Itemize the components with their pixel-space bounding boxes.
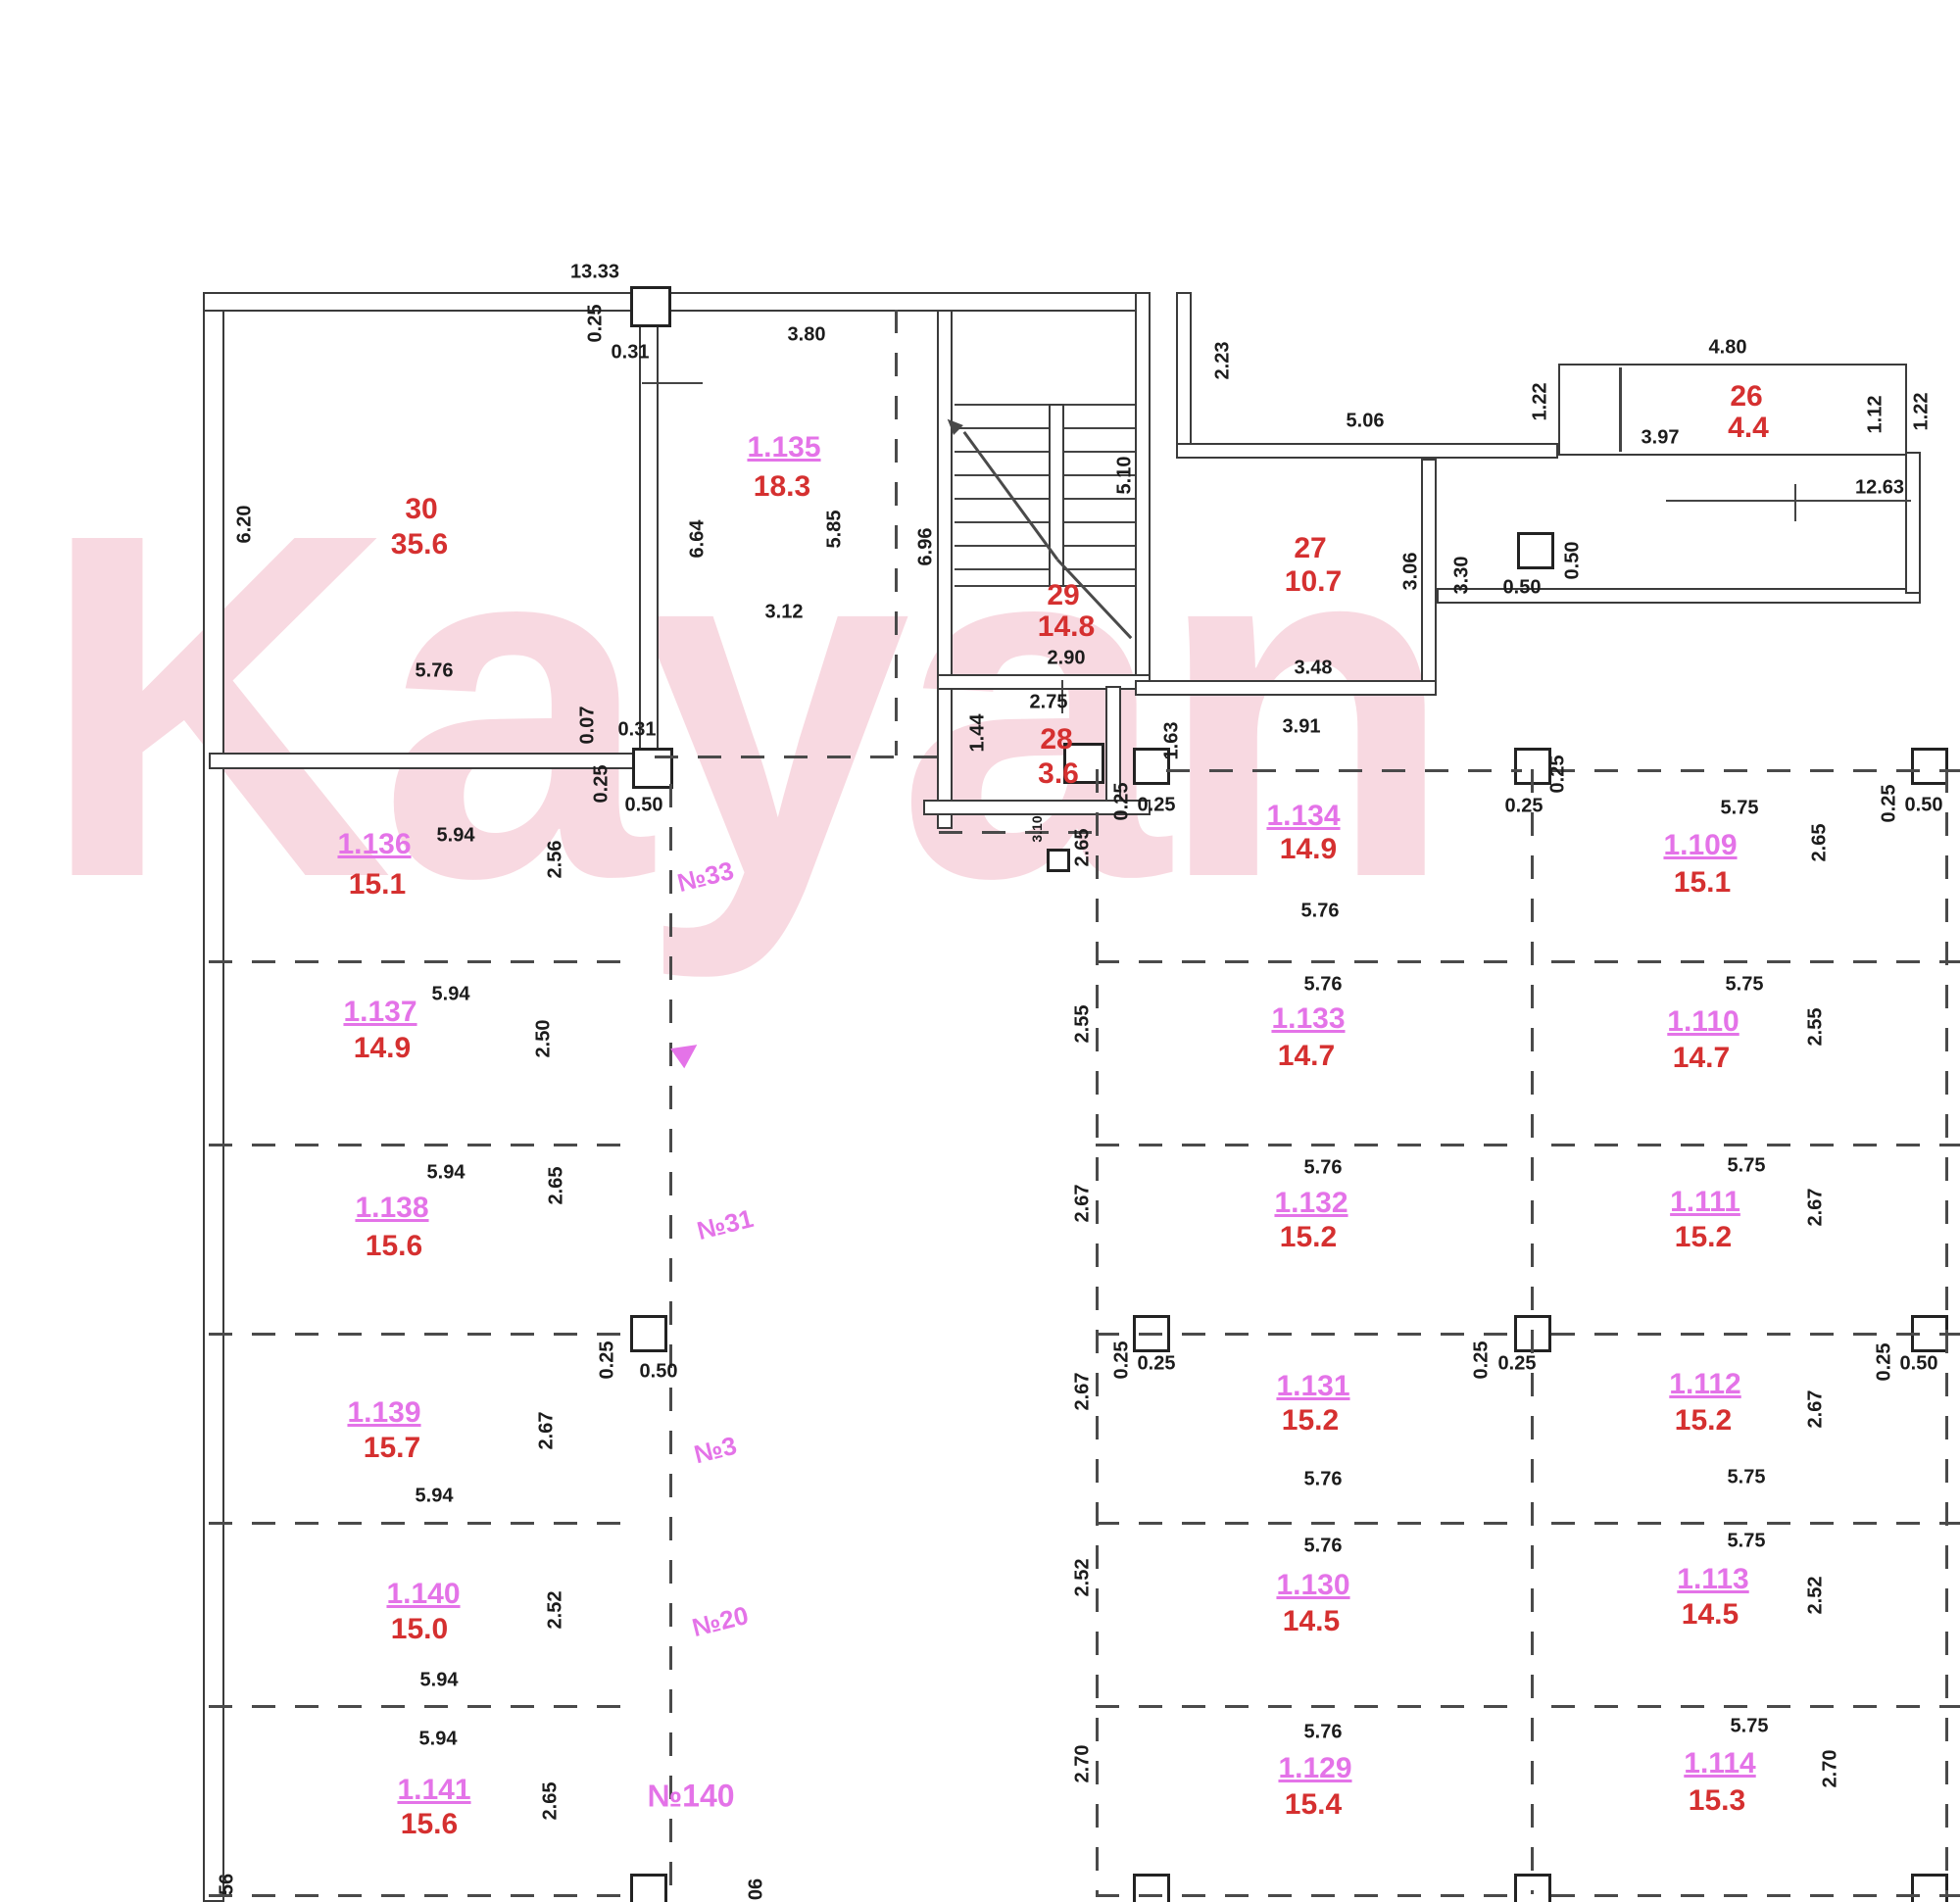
- dashed-line: [655, 756, 937, 758]
- dimension-label: 2.65: [1072, 829, 1095, 867]
- room-area: 18.3: [754, 470, 810, 504]
- dimension-label: 2.67: [536, 1412, 559, 1450]
- dashed-line: [1531, 769, 1534, 1894]
- space-number: 1.130: [1276, 1569, 1349, 1602]
- dashed-line: [209, 1522, 640, 1525]
- room-area: 15.7: [364, 1432, 420, 1465]
- column: [1517, 532, 1554, 569]
- dashed-line: [1551, 960, 1960, 963]
- space-number: 1.138: [355, 1192, 428, 1225]
- door-swing-line: [642, 382, 703, 384]
- space-number: 1.114: [1684, 1747, 1755, 1780]
- dimension-label: 2.52: [1072, 1559, 1095, 1597]
- room-area: 15.2: [1675, 1404, 1732, 1438]
- dimension-label: 5.76: [1304, 1157, 1343, 1180]
- dimension-label: 5.94: [432, 984, 470, 1006]
- wall-room27-right: [1421, 459, 1437, 696]
- dimension-label: 5.76: [1304, 974, 1343, 997]
- dimension-label: 1.12: [1865, 396, 1887, 434]
- space-number: 1.140: [386, 1578, 460, 1611]
- room-area: 15.3: [1689, 1784, 1745, 1818]
- door-marker: [1047, 849, 1070, 872]
- dimension-label: 3.48: [1295, 658, 1333, 680]
- dimension-label: 2.70: [1072, 1745, 1095, 1783]
- room-area: 3.6: [1038, 757, 1079, 791]
- dimension-label: 2.55: [1805, 1008, 1828, 1047]
- dimension-label: 0.25: [1111, 783, 1134, 821]
- dimension-label: 0.25: [1505, 796, 1543, 818]
- wall-stair-left: [937, 310, 953, 829]
- dimension-label: 1.44: [967, 714, 990, 753]
- column: [630, 286, 671, 327]
- space-number: 1.110: [1667, 1005, 1739, 1039]
- dimension-label: 13.33: [570, 262, 619, 284]
- dashed-line: [1945, 769, 1948, 1894]
- wall-room27-bottom: [1135, 680, 1437, 696]
- room-area: 15.2: [1675, 1221, 1732, 1254]
- space-number: 1.135: [747, 431, 820, 464]
- dimension-label: 4.80: [1709, 337, 1747, 360]
- dimension-label: 5.94: [416, 1486, 454, 1508]
- dimension-label: 6.96: [915, 528, 938, 566]
- dimension-label: 5.94: [419, 1729, 458, 1751]
- dashed-line: [209, 1333, 640, 1336]
- dimension-label: 0.50: [1905, 795, 1943, 817]
- dashed-line: [209, 1144, 640, 1146]
- dimension-label: 0.07: [577, 707, 600, 745]
- dimension-label: 56: [217, 1874, 239, 1895]
- room-area: 4.4: [1728, 412, 1769, 445]
- dashed-line: [895, 310, 898, 756]
- dimension-label: 5.75: [1728, 1467, 1766, 1489]
- space-number: 1.132: [1274, 1187, 1347, 1220]
- parking-space-number: №33: [674, 855, 737, 899]
- room-number: 26: [1730, 380, 1762, 414]
- stair-tread: [955, 474, 1135, 476]
- wall-wing-top: [1176, 443, 1558, 459]
- room-number: 30: [405, 493, 437, 526]
- room-area: 14.7: [1278, 1040, 1335, 1073]
- space-number: 1.139: [347, 1396, 420, 1430]
- room-area: 15.2: [1282, 1404, 1339, 1438]
- dashed-line: [1096, 1894, 1522, 1897]
- room-area: 15.2: [1280, 1221, 1337, 1254]
- dimension-label: 0.25: [1874, 1343, 1896, 1382]
- dashed-line: [1096, 1333, 1522, 1336]
- room-number: 27: [1294, 532, 1326, 565]
- stair-tread: [955, 568, 1135, 570]
- dimension-label: 0.31: [612, 342, 650, 365]
- dashed-line: [209, 960, 640, 963]
- dimension-label: 5.76: [1301, 901, 1340, 923]
- dashed-line: [1551, 1894, 1960, 1897]
- dimension-label: 5.76: [416, 660, 454, 683]
- dimension-label: 5.76: [1304, 1469, 1343, 1491]
- dimension-label: 5.85: [824, 511, 847, 549]
- room-area: 15.0: [391, 1613, 448, 1646]
- dimension-label: 3.97: [1641, 427, 1680, 450]
- space-number: 1.131: [1276, 1370, 1349, 1403]
- dimension-label: 5.75: [1721, 798, 1759, 820]
- column: [1133, 1874, 1170, 1902]
- dimension-label: 06: [746, 1878, 768, 1900]
- dimension-label: 12.63: [1855, 477, 1904, 500]
- column: [1911, 748, 1948, 785]
- room-area: 15.1: [349, 868, 406, 902]
- parking-space-number: №3: [691, 1431, 740, 1471]
- dimension-label: 0.25: [1879, 785, 1901, 823]
- space-number: 1.136: [337, 828, 411, 861]
- room-number: 28: [1040, 723, 1072, 756]
- dimension-label: 6.20: [234, 506, 257, 544]
- stair-tread: [955, 498, 1135, 500]
- room-area: 15.4: [1285, 1788, 1342, 1822]
- dimension-label: 0.25: [1498, 1353, 1537, 1376]
- room-area: 15.6: [366, 1230, 422, 1263]
- space-number: 1.129: [1278, 1752, 1351, 1785]
- dimension-label: 1.22: [1530, 383, 1552, 421]
- room-area: 14.9: [354, 1032, 411, 1065]
- wall-right-edge: [1905, 452, 1921, 594]
- dimension-label: 5.76: [1304, 1722, 1343, 1744]
- stair-tread: [955, 521, 1135, 523]
- dimension-label: 3.06: [1400, 553, 1423, 591]
- dashed-line: [209, 1705, 640, 1708]
- dimension-label: 6.64: [687, 520, 710, 559]
- column: [1911, 1874, 1948, 1902]
- room-area: 14.5: [1682, 1598, 1739, 1632]
- dimension-label: 2.56: [545, 841, 567, 879]
- dimension-label: 3.10: [1029, 815, 1045, 842]
- dimension-label: 2.70: [1820, 1750, 1842, 1788]
- parking-space-number: №31: [694, 1203, 757, 1246]
- space-number: 1.134: [1266, 800, 1340, 833]
- room-area: 15.1: [1674, 866, 1731, 900]
- room-number: 29: [1047, 579, 1079, 612]
- column: [632, 748, 673, 789]
- dashed-line: [1551, 769, 1960, 772]
- dashed-line: [1096, 1522, 1522, 1525]
- dashed-line: [669, 784, 672, 1894]
- dimension-label: 0.25: [585, 305, 608, 343]
- dimension-label: 0.50: [1562, 542, 1585, 580]
- wall-top-exterior: [203, 292, 1149, 312]
- dashed-line: [1551, 1144, 1960, 1146]
- dimension-label: 5.94: [420, 1670, 459, 1692]
- dimension-label: 5.75: [1728, 1531, 1766, 1553]
- wall-room26-divider: [1619, 367, 1622, 452]
- dimension-label: 3.80: [788, 324, 826, 347]
- dimension-label: 5.06: [1347, 411, 1385, 433]
- dimension-label: 0.31: [618, 719, 657, 742]
- floor-plan-canvas: Kayan: [0, 0, 1960, 1902]
- dimension-line: [1666, 500, 1911, 502]
- column: [630, 1874, 667, 1902]
- dimension-label: 0.50: [1503, 577, 1542, 600]
- room-area: 14.8: [1038, 610, 1095, 644]
- stair-landing-edge: [955, 585, 1135, 587]
- direction-marker: ▶: [667, 1030, 706, 1071]
- dashed-line: [1551, 1522, 1960, 1525]
- stair-tread: [955, 404, 1135, 406]
- space-number: 1.137: [343, 996, 416, 1029]
- dimension-label: 3.30: [1451, 557, 1474, 595]
- dimension-label: 5.75: [1726, 974, 1764, 997]
- dimension-label: 2.90: [1048, 648, 1086, 670]
- dimension-label: 2.75: [1030, 692, 1068, 714]
- dashed-line: [1096, 1144, 1522, 1146]
- dimension-label: 2.55: [1072, 1005, 1095, 1044]
- dimension-label: 2.67: [1072, 1185, 1095, 1223]
- wall-left-exterior: [203, 292, 224, 1902]
- dimension-label: 2.52: [545, 1591, 567, 1630]
- dimension-label: 0.25: [1471, 1341, 1494, 1380]
- dimension-label: 2.67: [1805, 1390, 1828, 1429]
- dashed-line: [1551, 1705, 1960, 1708]
- wall-room30-bottom: [209, 753, 640, 769]
- space-number: 1.109: [1663, 829, 1737, 862]
- dimension-label: 2.67: [1072, 1373, 1095, 1411]
- room-area: 10.7: [1285, 565, 1342, 599]
- wall-stair-right: [1135, 292, 1151, 689]
- room-area: 35.6: [391, 528, 448, 561]
- dimension-label: 5.10: [1114, 457, 1137, 495]
- dimension-label: 3.91: [1283, 716, 1321, 739]
- dimension-label: 5.75: [1731, 1716, 1769, 1738]
- dimension-label: 5.75: [1728, 1155, 1766, 1178]
- dimension-label: 1.22: [1911, 393, 1934, 431]
- dimension-label: 0.25: [1547, 756, 1570, 794]
- wall-room30-right: [639, 310, 659, 756]
- dimension-label: 0.50: [640, 1361, 678, 1384]
- dimension-label: 3.12: [765, 602, 804, 624]
- room-area: 14.7: [1673, 1042, 1730, 1075]
- dimension-label: 2.65: [540, 1782, 563, 1821]
- space-number: 1.112: [1669, 1368, 1740, 1401]
- dimension-label: 2.65: [1809, 824, 1832, 862]
- dimension-label: 2.52: [1805, 1577, 1828, 1615]
- space-number: 1.113: [1677, 1563, 1748, 1596]
- dimension-label: 1.63: [1161, 722, 1184, 760]
- dashed-line: [1096, 1705, 1522, 1708]
- wall-corridor-right: [1176, 292, 1192, 459]
- space-number: 1.111: [1670, 1186, 1740, 1219]
- parking-space-number: №140: [647, 1779, 734, 1815]
- dimension-label: 0.25: [1138, 1353, 1176, 1376]
- dimension-label: 0.25: [591, 765, 613, 804]
- dimension-label: 0.25: [597, 1341, 619, 1380]
- dashed-line: [1096, 960, 1522, 963]
- dimension-label: 0.50: [1900, 1353, 1938, 1376]
- dimension-label: 2.50: [533, 1020, 556, 1058]
- parking-space-number: №20: [689, 1600, 752, 1643]
- stair-tread: [955, 427, 1135, 429]
- dimension-label: 0.25: [1111, 1341, 1134, 1380]
- dimension-label: 2.65: [546, 1167, 568, 1205]
- room-area: 15.6: [401, 1808, 458, 1841]
- dimension-tick: [1794, 484, 1796, 521]
- dimension-label: 5.76: [1304, 1536, 1343, 1558]
- dashed-line: [1096, 769, 1099, 1894]
- dimension-label: 2.23: [1212, 342, 1235, 380]
- dashed-line: [1551, 1333, 1960, 1336]
- dimension-label: 5.94: [437, 825, 475, 848]
- dimension-label: 0.50: [625, 795, 663, 817]
- dimension-label: 5.94: [427, 1162, 465, 1185]
- room-area: 14.9: [1280, 833, 1337, 866]
- space-number: 1.141: [397, 1774, 470, 1807]
- dimension-label: 0.25: [1138, 795, 1176, 817]
- dimension-label: 2.67: [1805, 1189, 1828, 1227]
- dashed-line: [1166, 769, 1522, 772]
- dashed-line: [209, 1894, 640, 1897]
- space-number: 1.133: [1271, 1002, 1345, 1036]
- room-area: 14.5: [1283, 1605, 1340, 1638]
